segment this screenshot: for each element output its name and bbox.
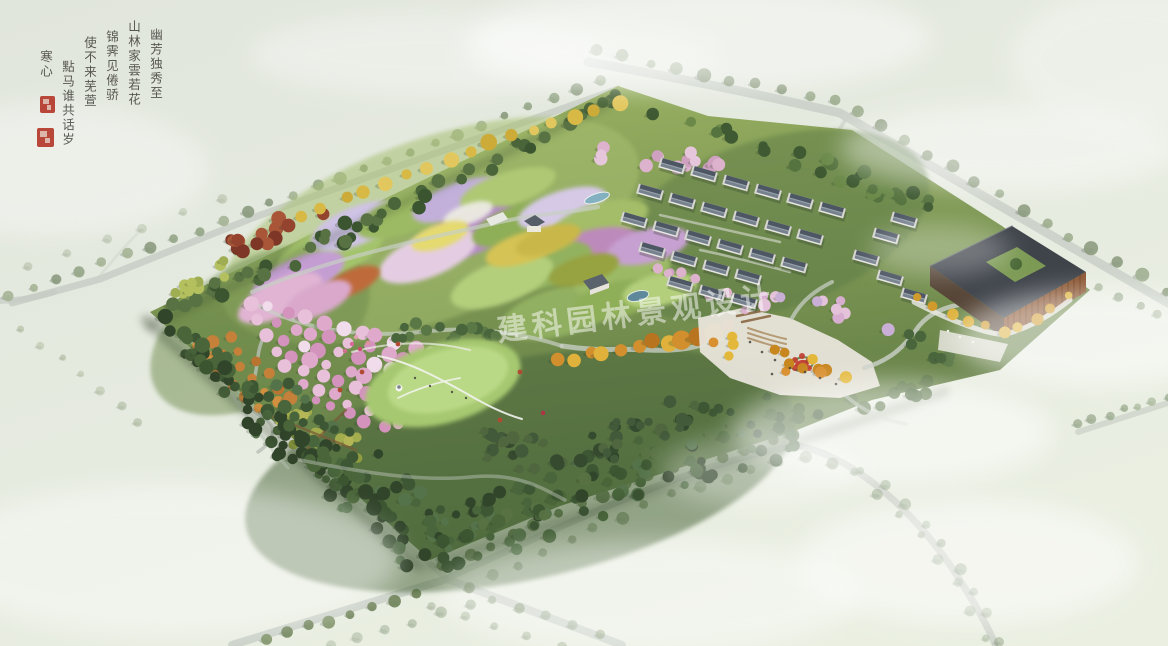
courtyard-tree — [1010, 258, 1022, 270]
seal-stamp — [37, 128, 54, 147]
aerial-rendering-canvas — [0, 0, 1168, 646]
seal-stamp — [40, 96, 55, 113]
park-masterplan-rendering: 幽芳独秀至山林家雲若花锦霁见倦骄使不来芜萱點马谁共话岁寒心 建科园林景观设计 — [0, 0, 1168, 646]
